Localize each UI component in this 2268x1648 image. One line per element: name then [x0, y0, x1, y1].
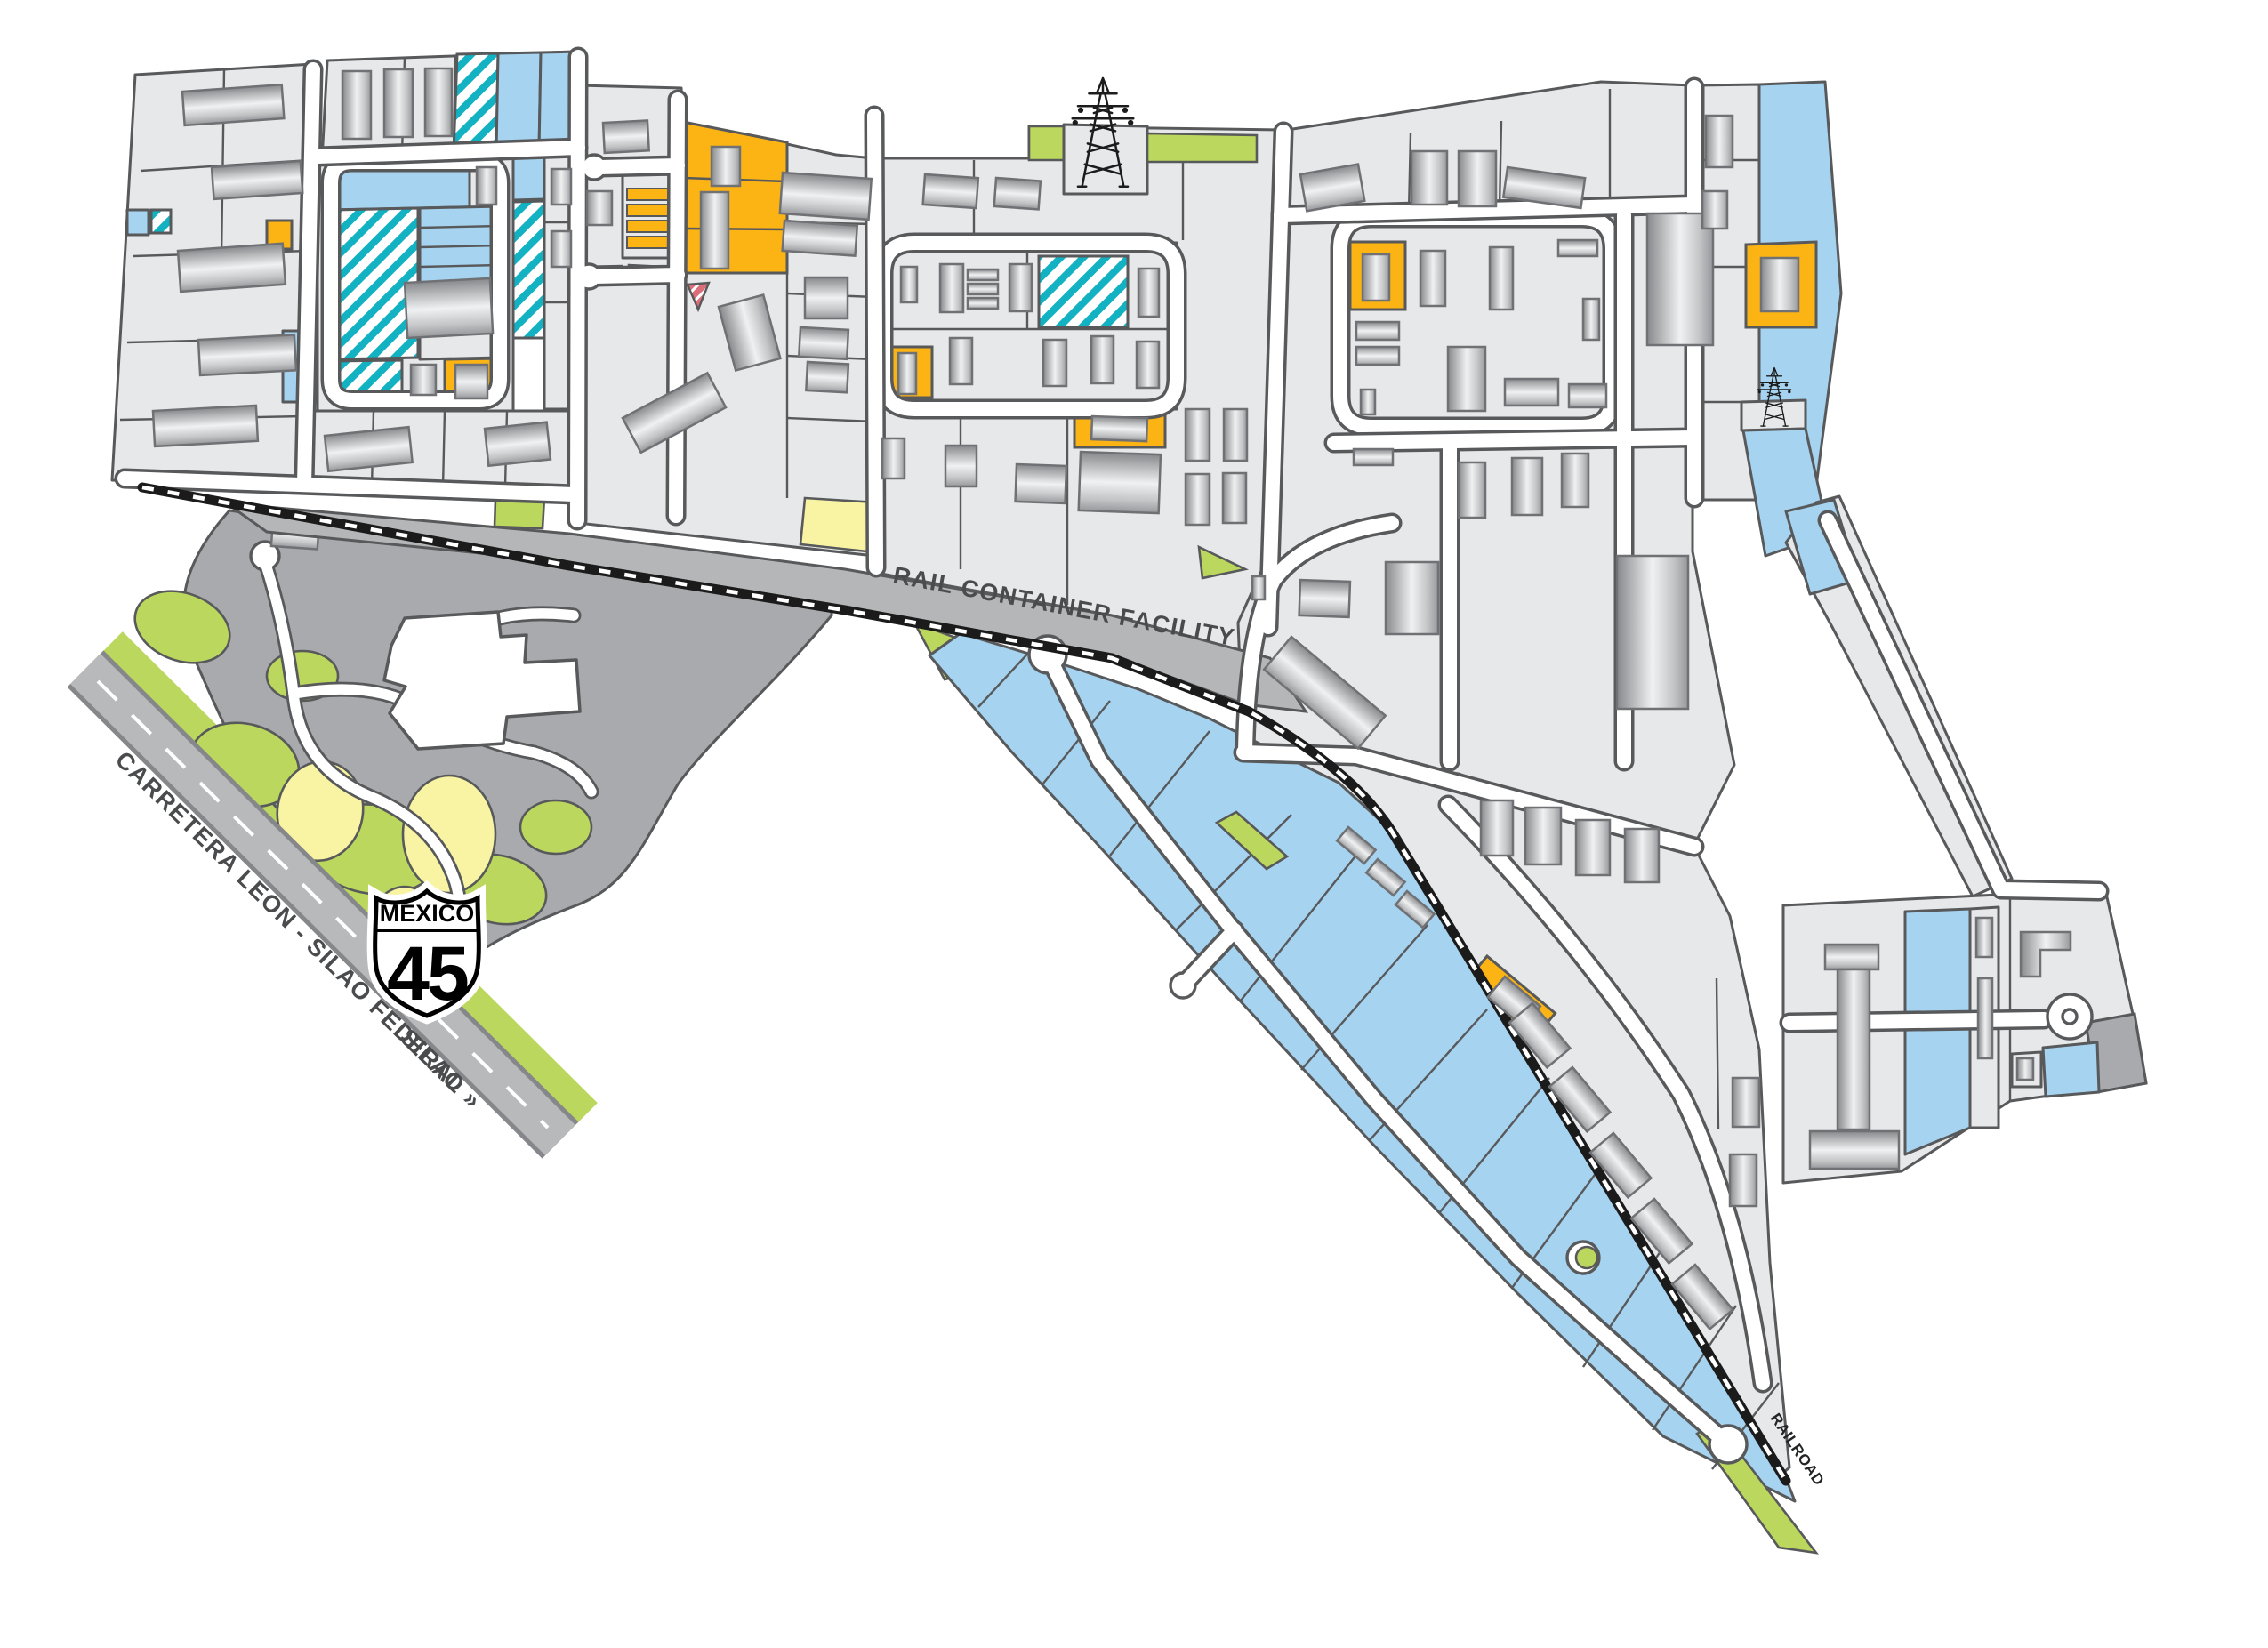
strip-green-circle — [1576, 1247, 1597, 1268]
route-shield: MEXICO 45 — [375, 891, 479, 1017]
tower-parcel — [1064, 125, 1147, 194]
block-northeast-strip — [1696, 82, 2012, 896]
map-page: RAIL CONTAINER FACILITY RAILROAD CARRETE… — [0, 0, 2268, 1648]
park-green-area — [520, 800, 591, 854]
shield-route-number: 45 — [387, 931, 468, 1017]
map-canvas: RAIL CONTAINER FACILITY RAILROAD CARRETE… — [0, 0, 2268, 1648]
shield-country-label: MEXICO — [380, 900, 475, 927]
